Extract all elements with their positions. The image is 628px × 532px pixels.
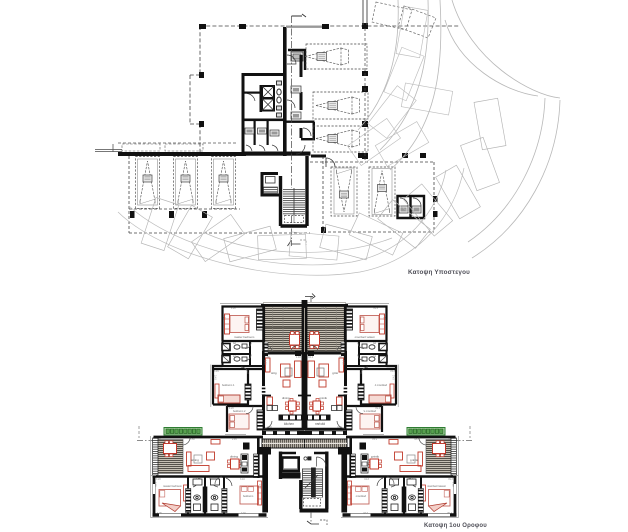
svg-text:3.60: 3.60 <box>259 484 262 489</box>
svg-text:master bedroom: master bedroom <box>163 484 182 488</box>
svg-text:bedroom 2: bedroom 2 <box>233 409 246 413</box>
svg-text:5.15: 5.15 <box>264 360 267 365</box>
svg-text:sittg: sittg <box>271 371 277 375</box>
svg-text:1.80: 1.80 <box>283 307 288 310</box>
svg-text:3.45: 3.45 <box>214 370 219 373</box>
svg-text:bedroom 1: bedroom 1 <box>222 383 235 387</box>
svg-text:4.90: 4.90 <box>265 356 270 359</box>
svg-text:kitchen: kitchen <box>284 422 294 426</box>
svg-text:master bedroom: master bedroom <box>234 335 255 339</box>
svg-text:dining: dining <box>230 455 238 459</box>
svg-text:Κατοψη 1ου Οροφου: Κατοψη 1ου Οροφου <box>424 523 487 529</box>
svg-text:3.60: 3.60 <box>190 438 195 441</box>
svg-text:3.10: 3.10 <box>240 478 245 481</box>
svg-text:3.20: 3.20 <box>156 478 161 481</box>
svg-text:sitting: sitting <box>191 458 199 462</box>
svg-text:2.45: 2.45 <box>232 438 237 441</box>
svg-text:1.10: 1.10 <box>296 356 301 359</box>
svg-text:dining: dining <box>282 396 290 400</box>
svg-text:bedroom: bedroom <box>243 494 253 498</box>
svg-text:Κατοψη Υποστεγου: Κατοψη Υποστεγου <box>408 269 470 276</box>
